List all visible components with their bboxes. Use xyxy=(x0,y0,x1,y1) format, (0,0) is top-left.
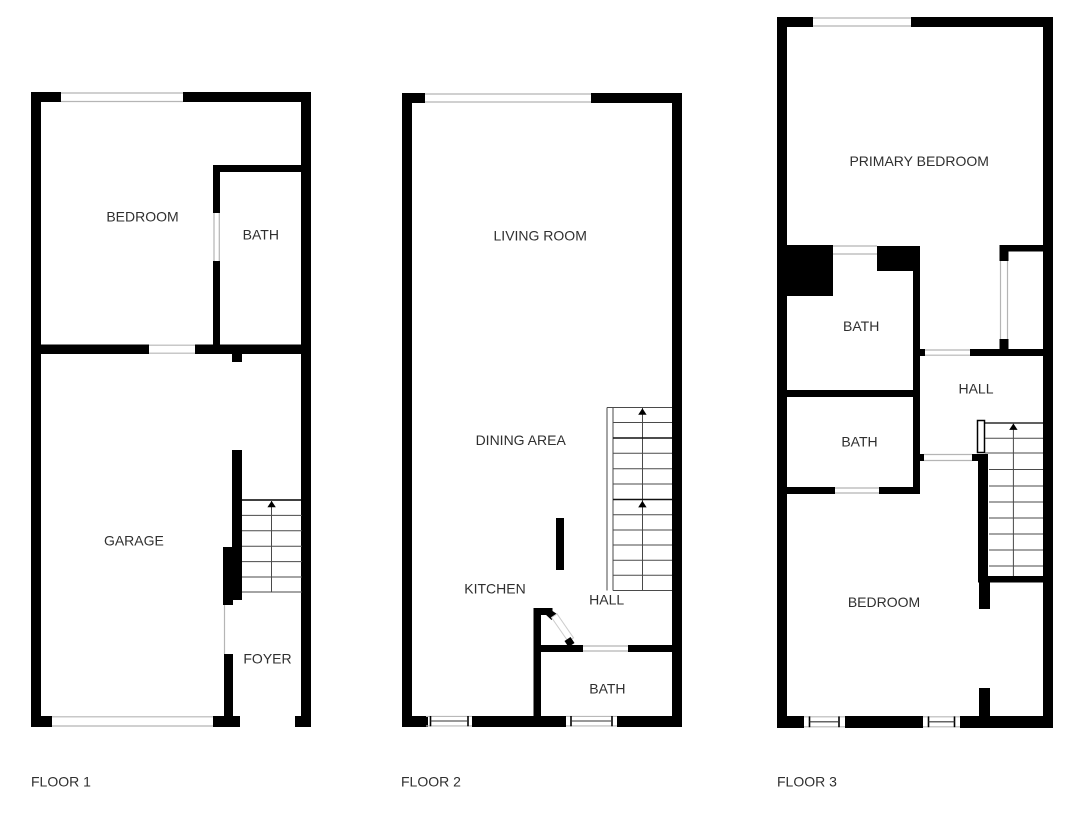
svg-text:KITCHEN: KITCHEN xyxy=(464,581,525,597)
svg-text:BEDROOM: BEDROOM xyxy=(106,209,178,225)
svg-text:FOYER: FOYER xyxy=(243,651,291,667)
svg-text:BATH: BATH xyxy=(243,227,279,243)
svg-text:BATH: BATH xyxy=(843,318,879,334)
svg-text:HALL: HALL xyxy=(958,381,993,397)
svg-text:PRIMARY BEDROOM: PRIMARY BEDROOM xyxy=(849,153,989,169)
svg-text:BATH: BATH xyxy=(841,433,877,449)
svg-text:BATH: BATH xyxy=(589,681,625,697)
svg-text:FLOOR 1: FLOOR 1 xyxy=(31,774,91,790)
svg-text:FLOOR 3: FLOOR 3 xyxy=(777,774,837,790)
svg-text:BEDROOM: BEDROOM xyxy=(848,594,920,610)
svg-text:LIVING ROOM: LIVING ROOM xyxy=(494,228,587,244)
svg-text:DINING AREA: DINING AREA xyxy=(476,432,567,448)
svg-text:HALL: HALL xyxy=(589,592,624,608)
svg-text:FLOOR 2: FLOOR 2 xyxy=(401,774,461,790)
svg-text:GARAGE: GARAGE xyxy=(104,533,164,549)
